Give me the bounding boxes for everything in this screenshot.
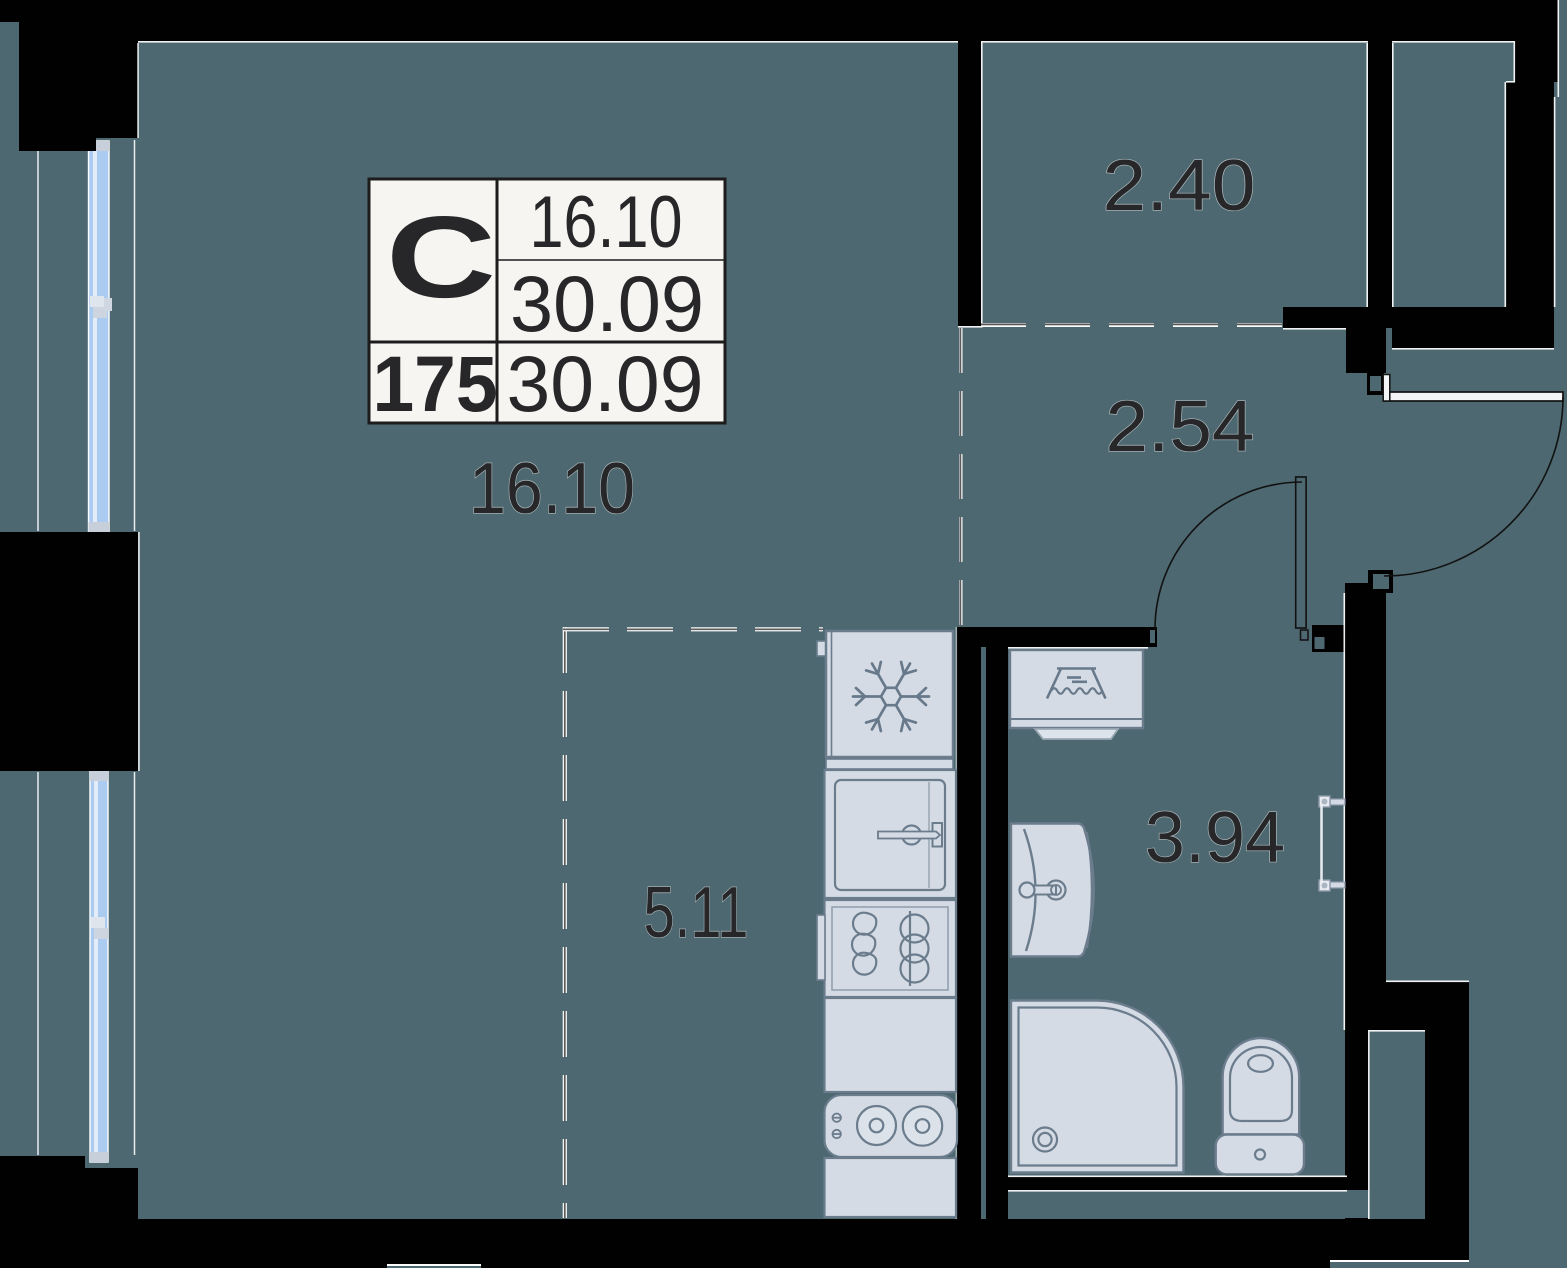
svg-text:2.54: 2.54: [1106, 387, 1255, 467]
svg-text:30.09: 30.09: [510, 259, 704, 348]
svg-text:30.09: 30.09: [507, 339, 704, 428]
svg-text:3.94: 3.94: [1145, 798, 1285, 878]
svg-text:5.11: 5.11: [644, 873, 749, 953]
svg-text:16.10: 16.10: [469, 449, 635, 529]
svg-text:175: 175: [373, 339, 498, 428]
svg-text:16.10: 16.10: [530, 182, 683, 263]
svg-text:С: С: [386, 192, 496, 322]
svg-text:2.40: 2.40: [1103, 146, 1256, 226]
